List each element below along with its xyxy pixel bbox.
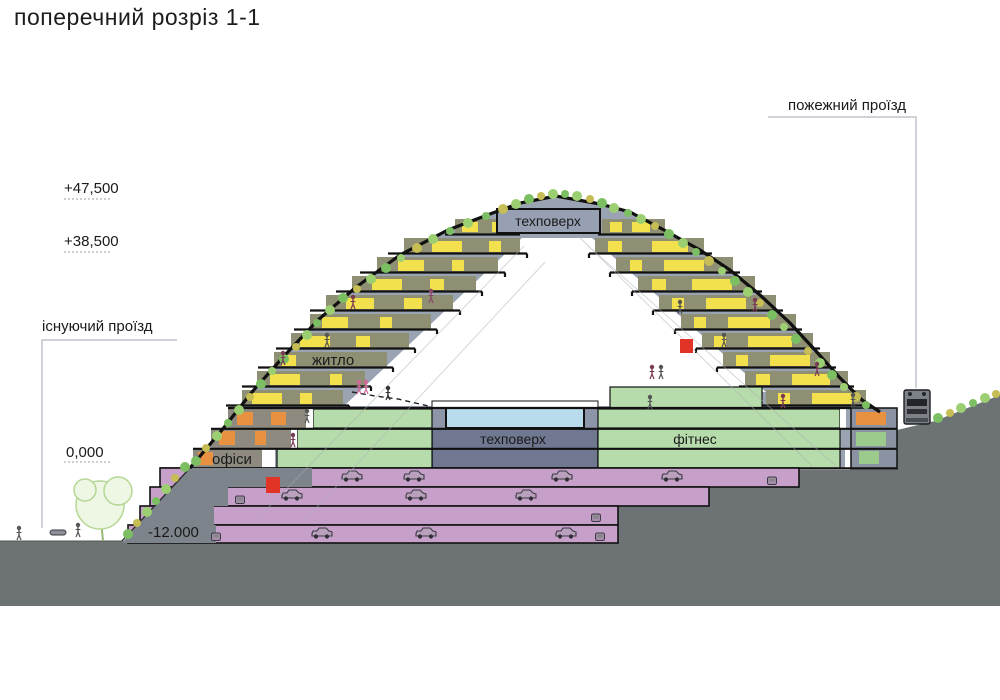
existing-road-label: існуючий проїзд (42, 318, 153, 335)
fitness-upper-floor (610, 387, 762, 408)
pool (446, 408, 584, 428)
fire-road-label: пожежний проїзд (788, 97, 906, 114)
parking-level-2 (150, 487, 709, 506)
fitness-label: фітнес (673, 431, 717, 447)
drawing-title: поперечний розріз 1-1 (14, 4, 261, 31)
fitness-floor (598, 429, 840, 449)
elevation-upper: +38,500 (64, 233, 119, 250)
elevation-lowest: -12.000 (148, 524, 199, 541)
tech-floor-top-label: техповерх (515, 213, 581, 229)
elevator-marker-left (266, 477, 280, 493)
section-drawing-page: поперечний розріз 1-1 (0, 0, 1000, 700)
elevation-crown: +47,500 (64, 180, 119, 197)
housing-label: житло (312, 352, 354, 369)
tech-floor-mid-label: техповерх (480, 431, 546, 447)
section-drawing: техповерх (0, 0, 1000, 700)
elevator-marker-right (680, 339, 693, 353)
right-edge-cap (851, 408, 897, 469)
offices-label: офіси (212, 451, 252, 468)
elevation-ground: 0,000 (66, 444, 104, 461)
existing-tree-sketch (74, 477, 132, 541)
fire-truck-icon (904, 390, 930, 424)
